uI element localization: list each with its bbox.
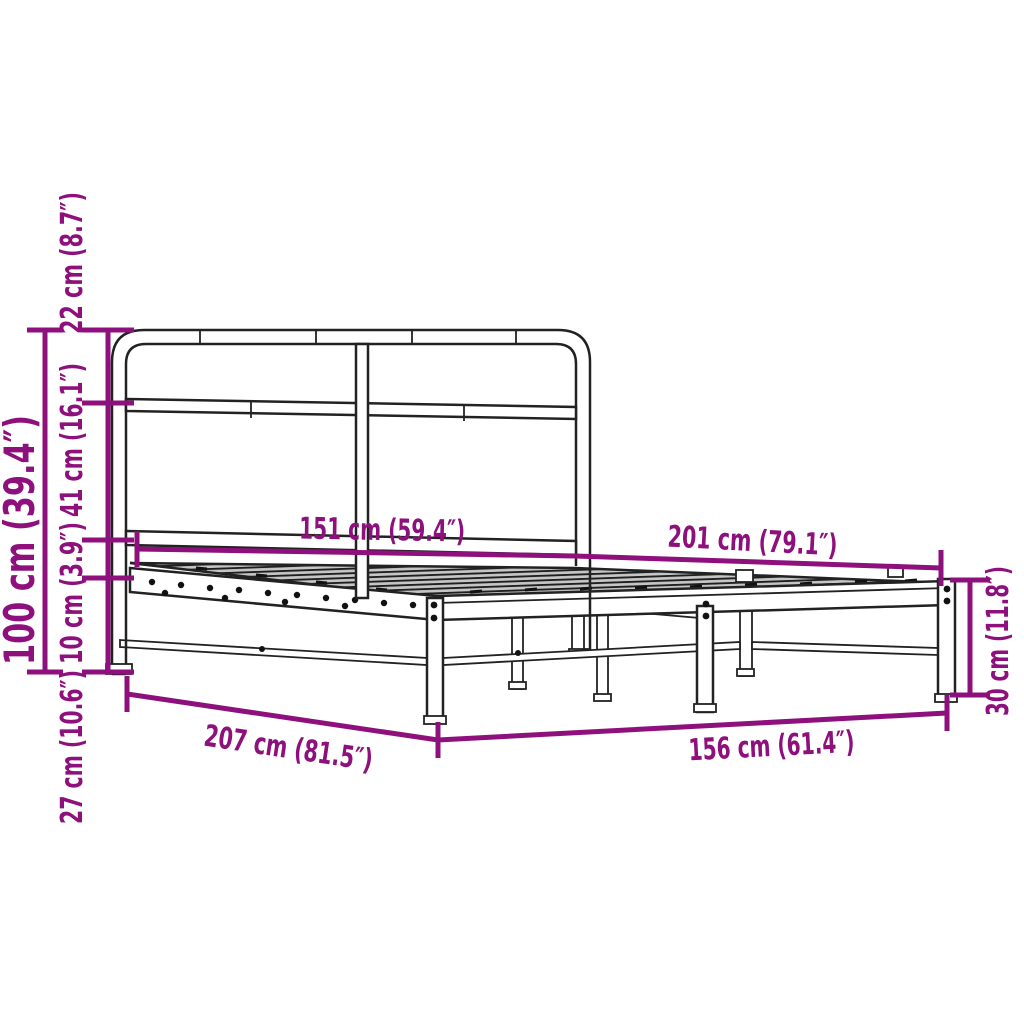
background xyxy=(0,0,1024,1024)
leg-foot xyxy=(737,669,754,676)
dim-label-headboard-top-section: 22 cm (8.7″) xyxy=(55,192,90,334)
leg-foot xyxy=(694,704,716,712)
brace-bolt xyxy=(259,646,265,652)
dim-label-foot-end-height: 30 cm (11.8″) xyxy=(981,566,1016,716)
dim-label-headboard-middle-section: 41 cm (16.1″) xyxy=(55,363,90,517)
dim-label-under-bed-clearance: 27 cm (10.6″) xyxy=(55,670,90,824)
dim-label-frame-side-height: 10 cm (3.9″) xyxy=(55,522,90,664)
brace-bolt xyxy=(515,650,521,656)
front-right-corner-leg xyxy=(938,579,955,701)
slat-holder-bracket xyxy=(736,570,753,582)
headboard-center-bar xyxy=(356,344,368,598)
leg-foot xyxy=(424,716,446,724)
leg-foot xyxy=(509,682,526,689)
front-center-leg xyxy=(697,606,713,712)
dim-label-total-height: 100 cm (39.4″) xyxy=(0,415,44,665)
bed-frame-dimension-diagram: 100 cm (39.4″) 22 cm (8.7″) 41 cm (16.1″… xyxy=(0,0,1024,1024)
dim-label-headboard-width: 151 cm (59.4″) xyxy=(299,512,466,550)
leg-foot xyxy=(594,694,611,701)
